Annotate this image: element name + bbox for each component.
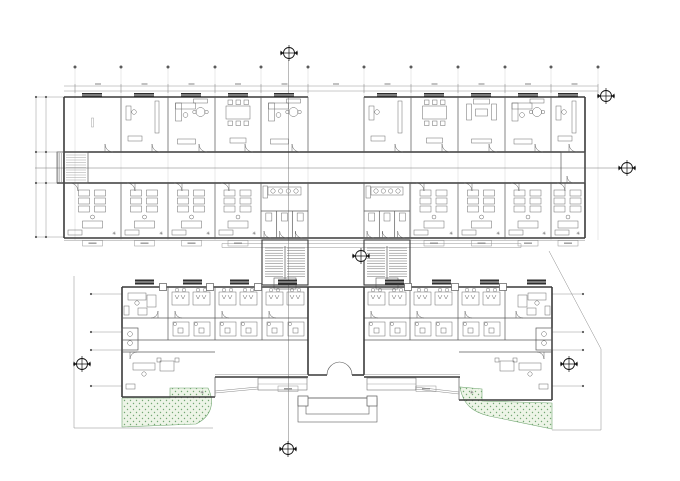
workroom-B: ✳ — [172, 183, 210, 246]
workroom-C — [368, 288, 406, 336]
section-marker — [597, 88, 615, 104]
workroom-C — [172, 288, 210, 336]
office-A — [369, 101, 402, 141]
workroom-B: ✳ — [68, 183, 116, 246]
svg-text:✳: ✳ — [576, 231, 580, 237]
wc-core — [261, 183, 308, 238]
floor-plan-svg: ✳✳✳✳✳✳✳✳✳✳ — [0, 0, 680, 481]
svg-text:✳: ✳ — [449, 231, 453, 237]
office-A — [92, 118, 94, 127]
entrance-porch — [215, 378, 459, 422]
workroom-C — [462, 288, 500, 336]
svg-text:✳: ✳ — [200, 390, 204, 396]
workroom-B: ✳ — [509, 183, 546, 246]
workroom-C — [219, 288, 257, 336]
site-layer — [74, 251, 601, 430]
office-A — [556, 101, 576, 141]
svg-text:✳: ✳ — [542, 231, 546, 237]
office-A — [269, 99, 302, 144]
west-stair-stub — [57, 152, 88, 183]
svg-text:✳: ✳ — [470, 390, 474, 396]
right-offices: ✳ — [470, 293, 550, 396]
section-marker — [279, 441, 297, 457]
floor-plan-canvas: ✳✳✳✳✳✳✳✳✳✳ — [0, 0, 680, 481]
section-marker — [560, 356, 578, 372]
office-top-left — [124, 293, 158, 318]
workroom-B: ✳ — [414, 183, 453, 246]
workroom-B: ✳ — [219, 183, 256, 246]
office-A — [512, 99, 545, 144]
workroom-B: ✳ — [554, 183, 581, 246]
office-A — [226, 100, 250, 143]
office-A — [176, 99, 209, 144]
workroom-B: ✳ — [462, 183, 500, 246]
section-marker — [73, 356, 91, 372]
workroom-B: ✳ — [125, 183, 163, 246]
wc-small-left — [122, 328, 138, 350]
landscape-left — [122, 388, 212, 427]
svg-text:✳: ✳ — [159, 231, 163, 237]
office-A — [423, 100, 447, 143]
section-marker — [280, 45, 298, 61]
section-marker — [618, 160, 636, 176]
office-top-right — [516, 293, 550, 318]
svg-text:✳: ✳ — [206, 231, 210, 237]
entrance-doors — [327, 362, 352, 375]
svg-text:✳: ✳ — [252, 231, 256, 237]
office-A — [126, 101, 159, 141]
wc-small-right — [536, 328, 552, 350]
wc-core — [364, 183, 410, 238]
workroom-C — [266, 288, 304, 336]
svg-text:✳: ✳ — [496, 231, 500, 237]
upper-block: ✳✳✳✳✳✳✳✳ — [57, 93, 585, 246]
svg-text:✳: ✳ — [112, 231, 116, 237]
workroom-C — [414, 288, 452, 336]
office-A — [467, 99, 497, 143]
stair-link — [222, 240, 521, 289]
